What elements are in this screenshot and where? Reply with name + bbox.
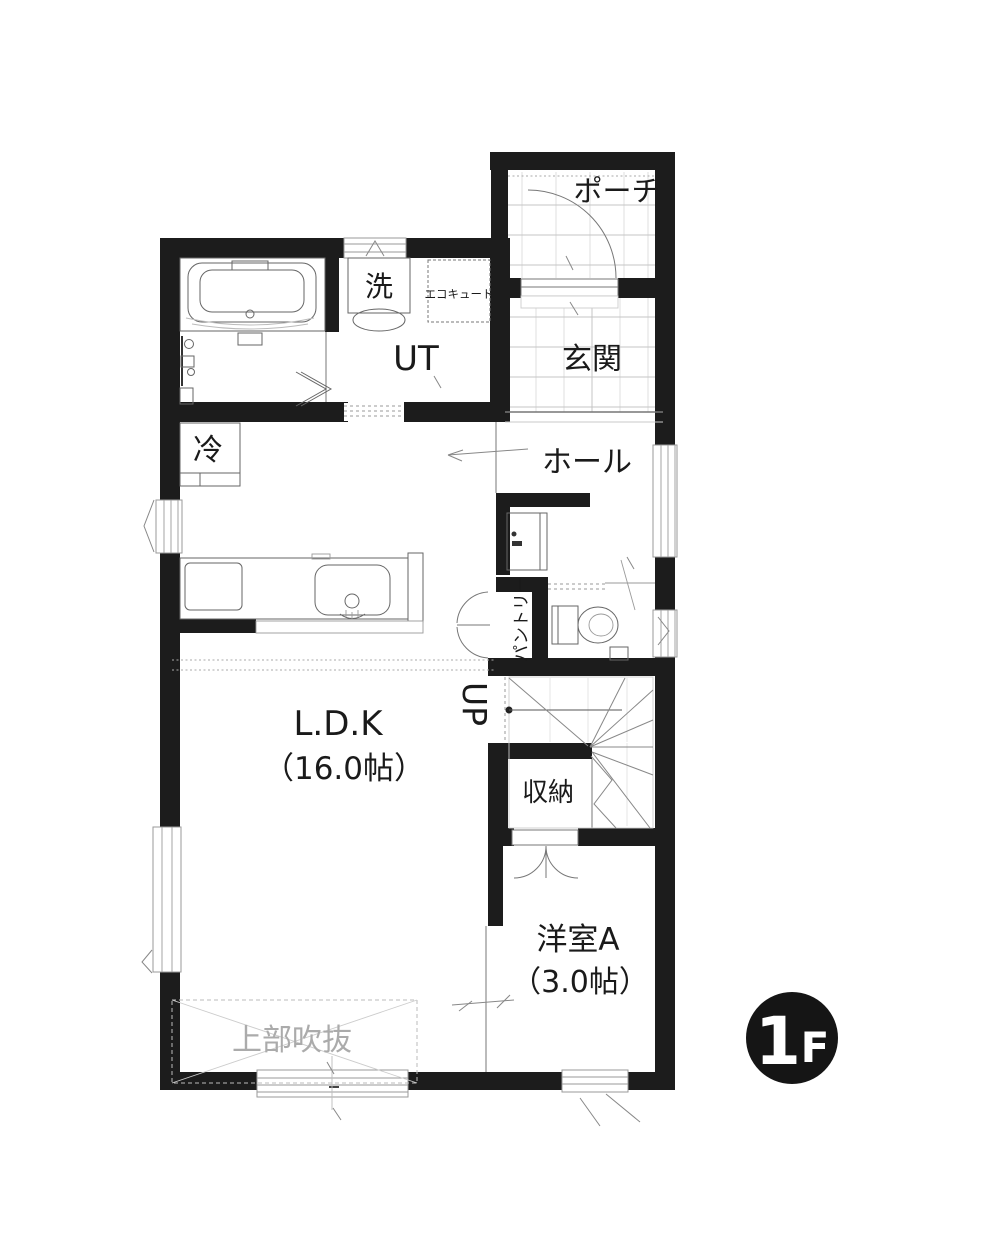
label-bedroom-a-area: （3.0帖） [511, 965, 649, 1000]
window-toilet-right [653, 610, 677, 657]
utility-sliding-door [344, 403, 404, 421]
window-left-ldk [142, 827, 181, 973]
floor-badge-number: 1 [755, 1003, 801, 1080]
thin-boundaries [172, 332, 663, 1072]
label-ldk: L.D.K [293, 704, 384, 744]
label-bedroom-a: 洋室A [536, 922, 619, 958]
label-entrance: 玄関 [562, 342, 622, 377]
label-ecocute: エコキュート [425, 287, 494, 301]
label-fridge: 冷 [193, 433, 223, 468]
hall-vanity [507, 513, 547, 570]
label-porch: ポーチ [573, 174, 660, 208]
floor-plan-1f: ポーチ 玄関 洗 エコキュート UT ホール 冷 パントリー UP L.D.K … [0, 0, 1000, 1250]
floor-plan-page: ポーチ 玄関 洗 エコキュート UT ホール 冷 パントリー UP L.D.K … [0, 0, 1000, 1250]
bedroom-double-door [512, 830, 578, 878]
window-bottom-bedroom [562, 1070, 640, 1126]
label-pantry: パントリー [512, 576, 532, 662]
label-washer: 洗 [365, 270, 393, 303]
bathroom [180, 258, 325, 404]
window-bottom-ldk [257, 1056, 408, 1120]
window-hall-right [653, 445, 677, 557]
label-ldk-area: （16.0帖） [263, 751, 425, 787]
window-left-kitchen [144, 500, 182, 553]
label-hall: ホール [542, 445, 632, 480]
toilet-fixture [552, 606, 628, 660]
label-open-above: 上部吹抜 [232, 1023, 352, 1058]
toilet-sliding-door [548, 560, 655, 610]
label-storage: 収納 [522, 778, 574, 808]
floor-badge-letter: F [801, 1023, 830, 1072]
label-utility: UT [393, 339, 439, 379]
bedroom-opening-arrow [452, 995, 514, 1011]
hall-ldk-arrow [448, 449, 528, 461]
floor-badge: 1 F [746, 992, 838, 1084]
label-stairs-up: UP [455, 682, 494, 726]
pantry-double-door [457, 592, 490, 658]
window-top [344, 238, 406, 258]
